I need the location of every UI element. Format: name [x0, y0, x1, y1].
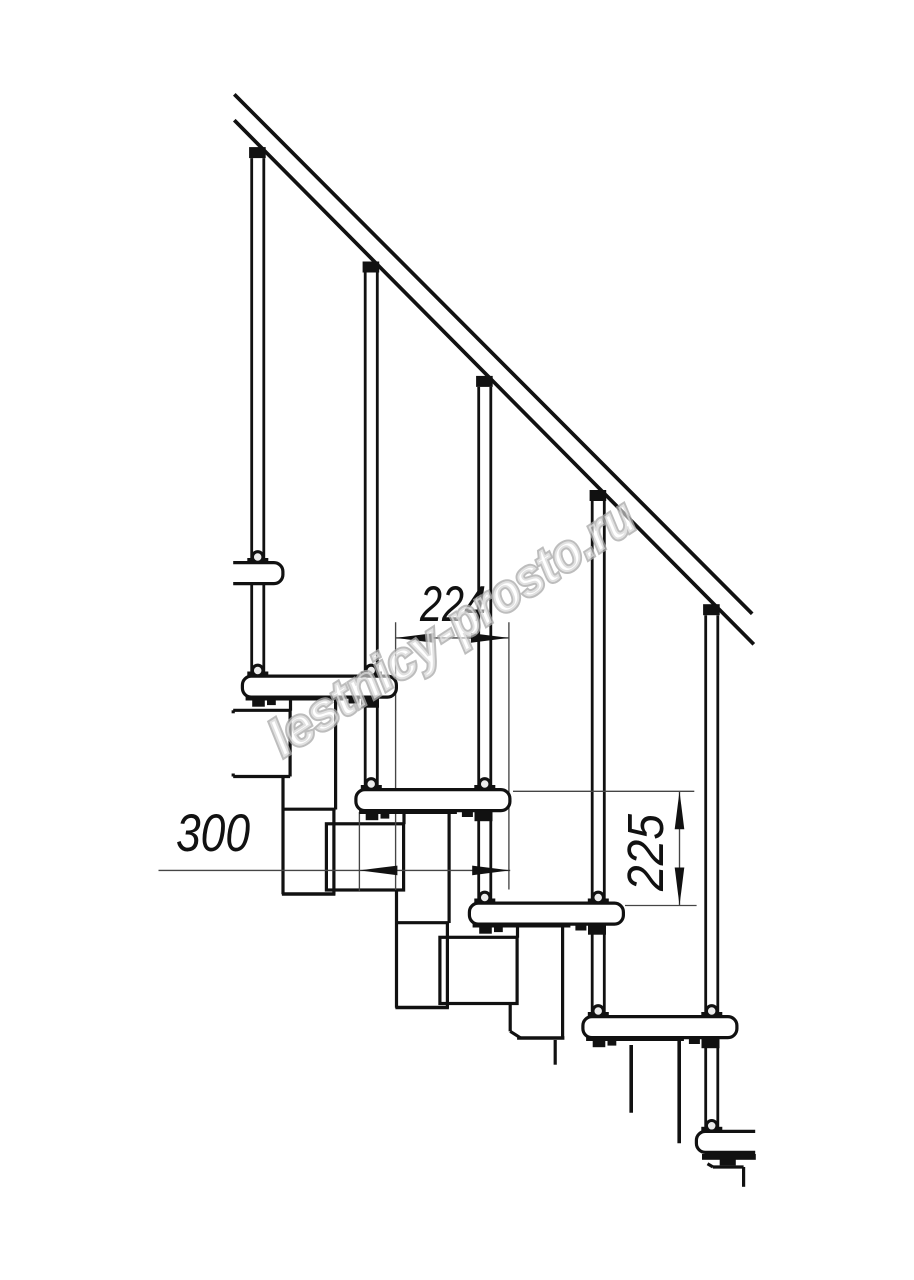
svg-text:225: 225: [617, 813, 674, 891]
svg-text:300: 300: [176, 804, 250, 863]
